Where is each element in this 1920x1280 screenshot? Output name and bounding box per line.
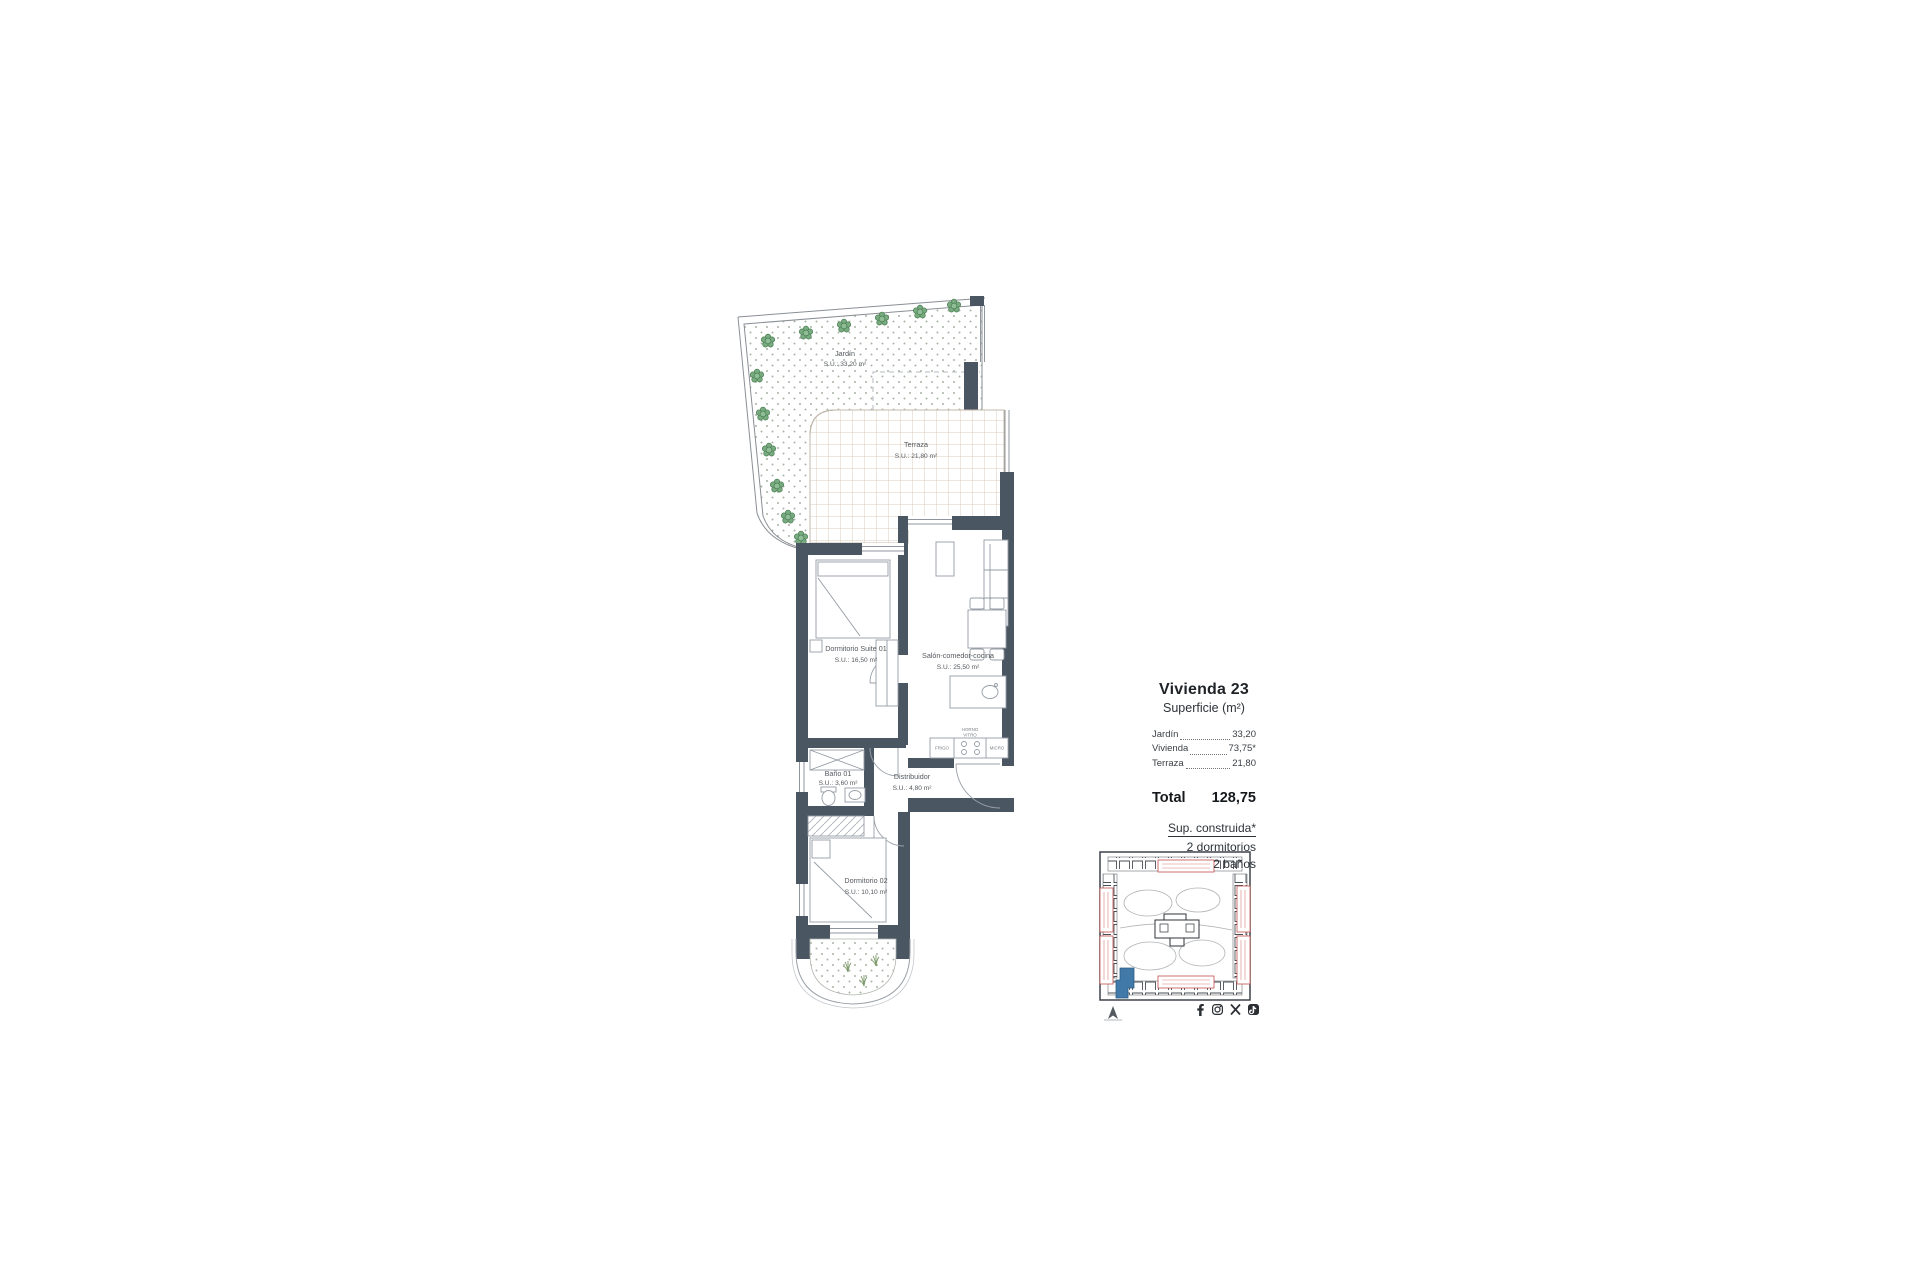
key-plan: [1100, 852, 1250, 1000]
row-value: 33,20: [1232, 728, 1256, 742]
summary-panel: Vivienda 23 Superficie (m²) Jardín 33,20…: [1152, 681, 1256, 871]
row-label: Terraza: [1152, 757, 1184, 771]
room-label-jardin: Jardín: [835, 349, 855, 358]
total-label: Total: [1152, 790, 1186, 806]
feature-bedrooms: 2 dormitorios: [1152, 840, 1256, 854]
room-label-dorm02: Dormitorio 02: [844, 876, 887, 885]
room-area-dorm02: S.U.: 10,10 m²: [845, 889, 888, 896]
oven-label-1: HORNO: [962, 727, 979, 732]
room-label-terraza: Terraza: [904, 440, 928, 449]
social-icons-row: [1193, 1003, 1260, 1016]
surface-heading: Superficie (m²): [1152, 701, 1256, 715]
feature-bathrooms: 2 baños: [1152, 857, 1256, 871]
room-label-suite: Dormitorio Suite 01: [825, 644, 887, 653]
surface-row-vivienda: Vivienda 73,75*: [1152, 742, 1256, 756]
kitchen-island: [950, 676, 1006, 708]
closet: [808, 816, 864, 836]
row-label: Jardín: [1152, 728, 1178, 742]
wall-segment: [970, 296, 984, 306]
built-note: Sup. construida*: [1152, 821, 1256, 837]
north-arrow-icon: [1104, 1006, 1122, 1020]
fridge-label: FRIGO: [935, 746, 949, 751]
room-label-bano: Baño 01: [825, 769, 852, 778]
room-area-distribuidor: S.U.: 4,80 m²: [893, 785, 933, 792]
x-icon: [1229, 1003, 1242, 1016]
tv-unit: [936, 542, 954, 576]
room-area-terraza: S.U.: 21,80 m²: [895, 453, 938, 460]
toilet: [822, 791, 835, 806]
room-area-suite: S.U.: 16,50 m²: [835, 657, 878, 664]
room-area-salon: S.U.: 25,50 m²: [937, 664, 980, 671]
nightstand: [810, 640, 822, 652]
wall-segment: [964, 362, 978, 410]
floor-plan-sheet: Jardín S.U.: 33,20 m² Terraza S.U.: 21,8…: [0, 0, 1920, 1280]
tiktok-icon: [1247, 1003, 1260, 1016]
unit-title: Vivienda 23: [1152, 681, 1256, 699]
oven-label-2: VITRO: [963, 733, 977, 738]
total-value: 128,75: [1212, 790, 1256, 806]
dining-table: [968, 610, 1006, 648]
room-area-bano: S.U.: 3,60 m²: [819, 780, 859, 787]
tree-icon: [913, 305, 926, 318]
surface-row-jardin: Jardín 33,20: [1152, 728, 1256, 742]
room-label-distribuidor: Distribuidor: [894, 772, 931, 781]
wall-segment: [1000, 472, 1014, 518]
facebook-icon: [1193, 1003, 1206, 1016]
row-label: Vivienda: [1152, 742, 1188, 756]
leader-dots: [1190, 754, 1226, 755]
row-value: 21,80: [1232, 757, 1256, 771]
micro-label: MICRO: [990, 746, 1005, 751]
surface-row-terraza: Terraza 21,80: [1152, 757, 1256, 771]
leader-dots: [1180, 739, 1230, 740]
total-row: Total 128,75: [1152, 790, 1256, 806]
room-label-salon: Salón-comedor-cocina: [922, 651, 994, 660]
porch-area: [792, 939, 914, 1008]
surface-rows: Jardín 33,20 Vivienda 73,75* Terraza 21,…: [1152, 728, 1256, 771]
instagram-icon: [1211, 1003, 1224, 1016]
row-value: 73,75*: [1229, 742, 1256, 756]
leader-dots: [1186, 768, 1231, 769]
room-area-jardin: S.U.: 33,20 m²: [824, 361, 867, 368]
